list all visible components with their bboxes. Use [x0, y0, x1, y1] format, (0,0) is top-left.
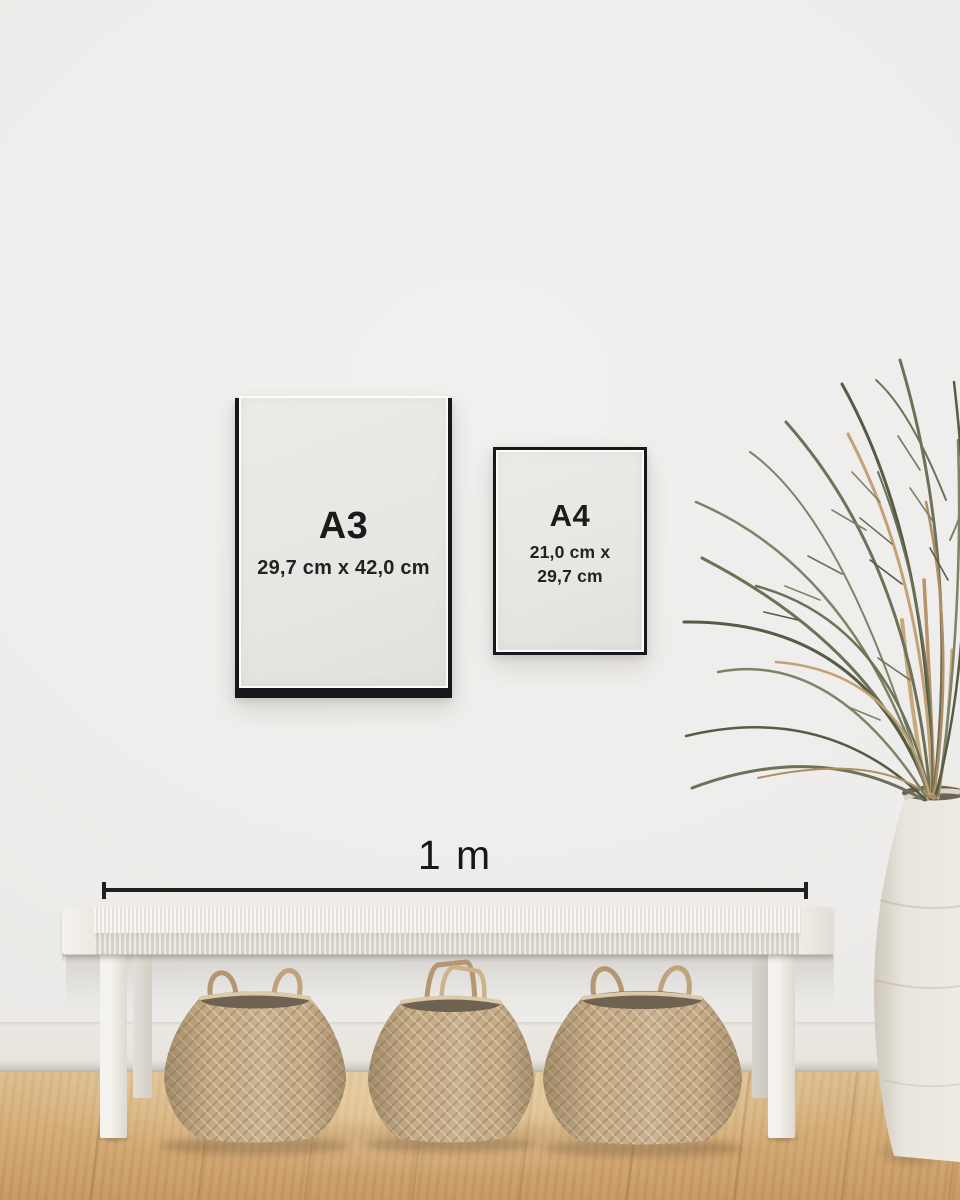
bench-seat-left-cap [62, 907, 94, 955]
size-guide-scene: 1 m A3 29,7 cm x 42,0 cm A4 21,0 cm x 29… [0, 0, 960, 1200]
bench-seat-weave-top [94, 907, 801, 934]
palm-leaflets [764, 436, 948, 720]
basket-bodies [164, 991, 742, 1145]
frame-a3-dimensions: 29,7 cm x 42,0 cm [257, 557, 429, 580]
seagrass-baskets [140, 950, 760, 1160]
dried-palm-plant [580, 320, 960, 820]
frame-a3-paper: A3 29,7 cm x 42,0 cm [239, 396, 448, 688]
scale-bar-right-tick [804, 882, 808, 899]
bench-front-right-leg [768, 950, 795, 1138]
scale-bar-left-tick [102, 882, 106, 899]
frame-a3-label: A3 [319, 505, 369, 548]
palm-fronds [684, 360, 960, 800]
white-vase [860, 780, 960, 1180]
bench-seat [62, 907, 833, 955]
bench-front-left-leg [100, 950, 127, 1138]
scale-bar-line [103, 888, 807, 892]
frame-a3: A3 29,7 cm x 42,0 cm [235, 398, 452, 698]
scale-bar-label: 1 m [103, 832, 807, 879]
bench-seat-right-cap [801, 907, 833, 955]
